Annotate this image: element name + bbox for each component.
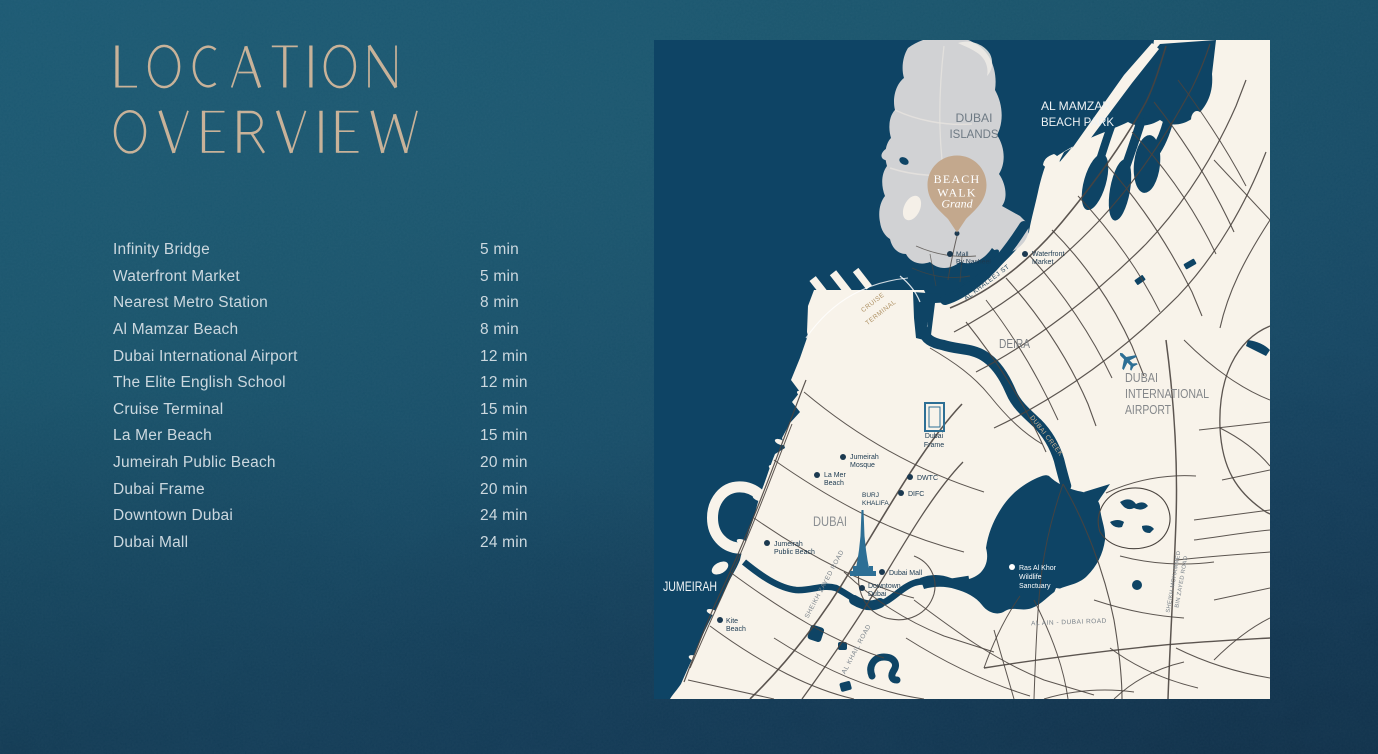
svg-text:Jumeirah: Jumeirah: [774, 541, 803, 548]
svg-text:Frame: Frame: [924, 442, 944, 449]
svg-text:AL MAMZAR: AL MAMZAR: [1041, 99, 1111, 113]
svg-text:Dubai: Dubai: [925, 433, 944, 440]
svg-text:DUBAI: DUBAI: [1125, 371, 1158, 385]
svg-text:DWTC: DWTC: [917, 475, 938, 482]
svg-text:By Nasheel: By Nasheel: [956, 259, 991, 266]
svg-text:AIRPORT: AIRPORT: [1125, 403, 1171, 417]
svg-text:JUMEIRAH: JUMEIRAH: [663, 579, 717, 594]
svg-text:Mosque: Mosque: [850, 462, 875, 469]
svg-text:Sanctuary: Sanctuary: [1019, 583, 1051, 590]
svg-text:Beach: Beach: [824, 480, 844, 487]
svg-text:DUBAI: DUBAI: [956, 113, 993, 125]
svg-text:KHALIFA: KHALIFA: [862, 500, 889, 507]
svg-text:Downtown: Downtown: [868, 583, 901, 590]
svg-text:DUBAI: DUBAI: [813, 513, 847, 529]
svg-text:BURJ: BURJ: [862, 492, 879, 499]
svg-text:La Mer: La Mer: [824, 472, 846, 479]
svg-text:Dubai: Dubai: [868, 591, 887, 598]
svg-text:Beach: Beach: [726, 626, 746, 633]
svg-text:BEACH: BEACH: [934, 172, 981, 186]
svg-text:Public Beach: Public Beach: [774, 549, 815, 556]
svg-text:Mall: Mall: [956, 251, 969, 258]
svg-text:INTERNATIONAL: INTERNATIONAL: [1125, 387, 1209, 401]
svg-text:Market: Market: [1032, 259, 1053, 266]
svg-text:Wildlife: Wildlife: [1019, 574, 1042, 581]
svg-text:BEACH PARK: BEACH PARK: [1041, 115, 1114, 129]
svg-text:Waterfront: Waterfront: [1032, 251, 1064, 258]
svg-text:Jumeirah: Jumeirah: [850, 454, 879, 461]
svg-text:DEIRA: DEIRA: [999, 337, 1031, 351]
svg-text:Kite: Kite: [726, 618, 738, 625]
svg-text:DIFC: DIFC: [908, 491, 924, 498]
svg-text:Ras Al Khor: Ras Al Khor: [1019, 565, 1057, 572]
svg-text:Dubai Mall: Dubai Mall: [889, 570, 923, 577]
svg-text:Grand: Grand: [941, 197, 973, 211]
svg-text:ISLANDS: ISLANDS: [950, 129, 999, 141]
